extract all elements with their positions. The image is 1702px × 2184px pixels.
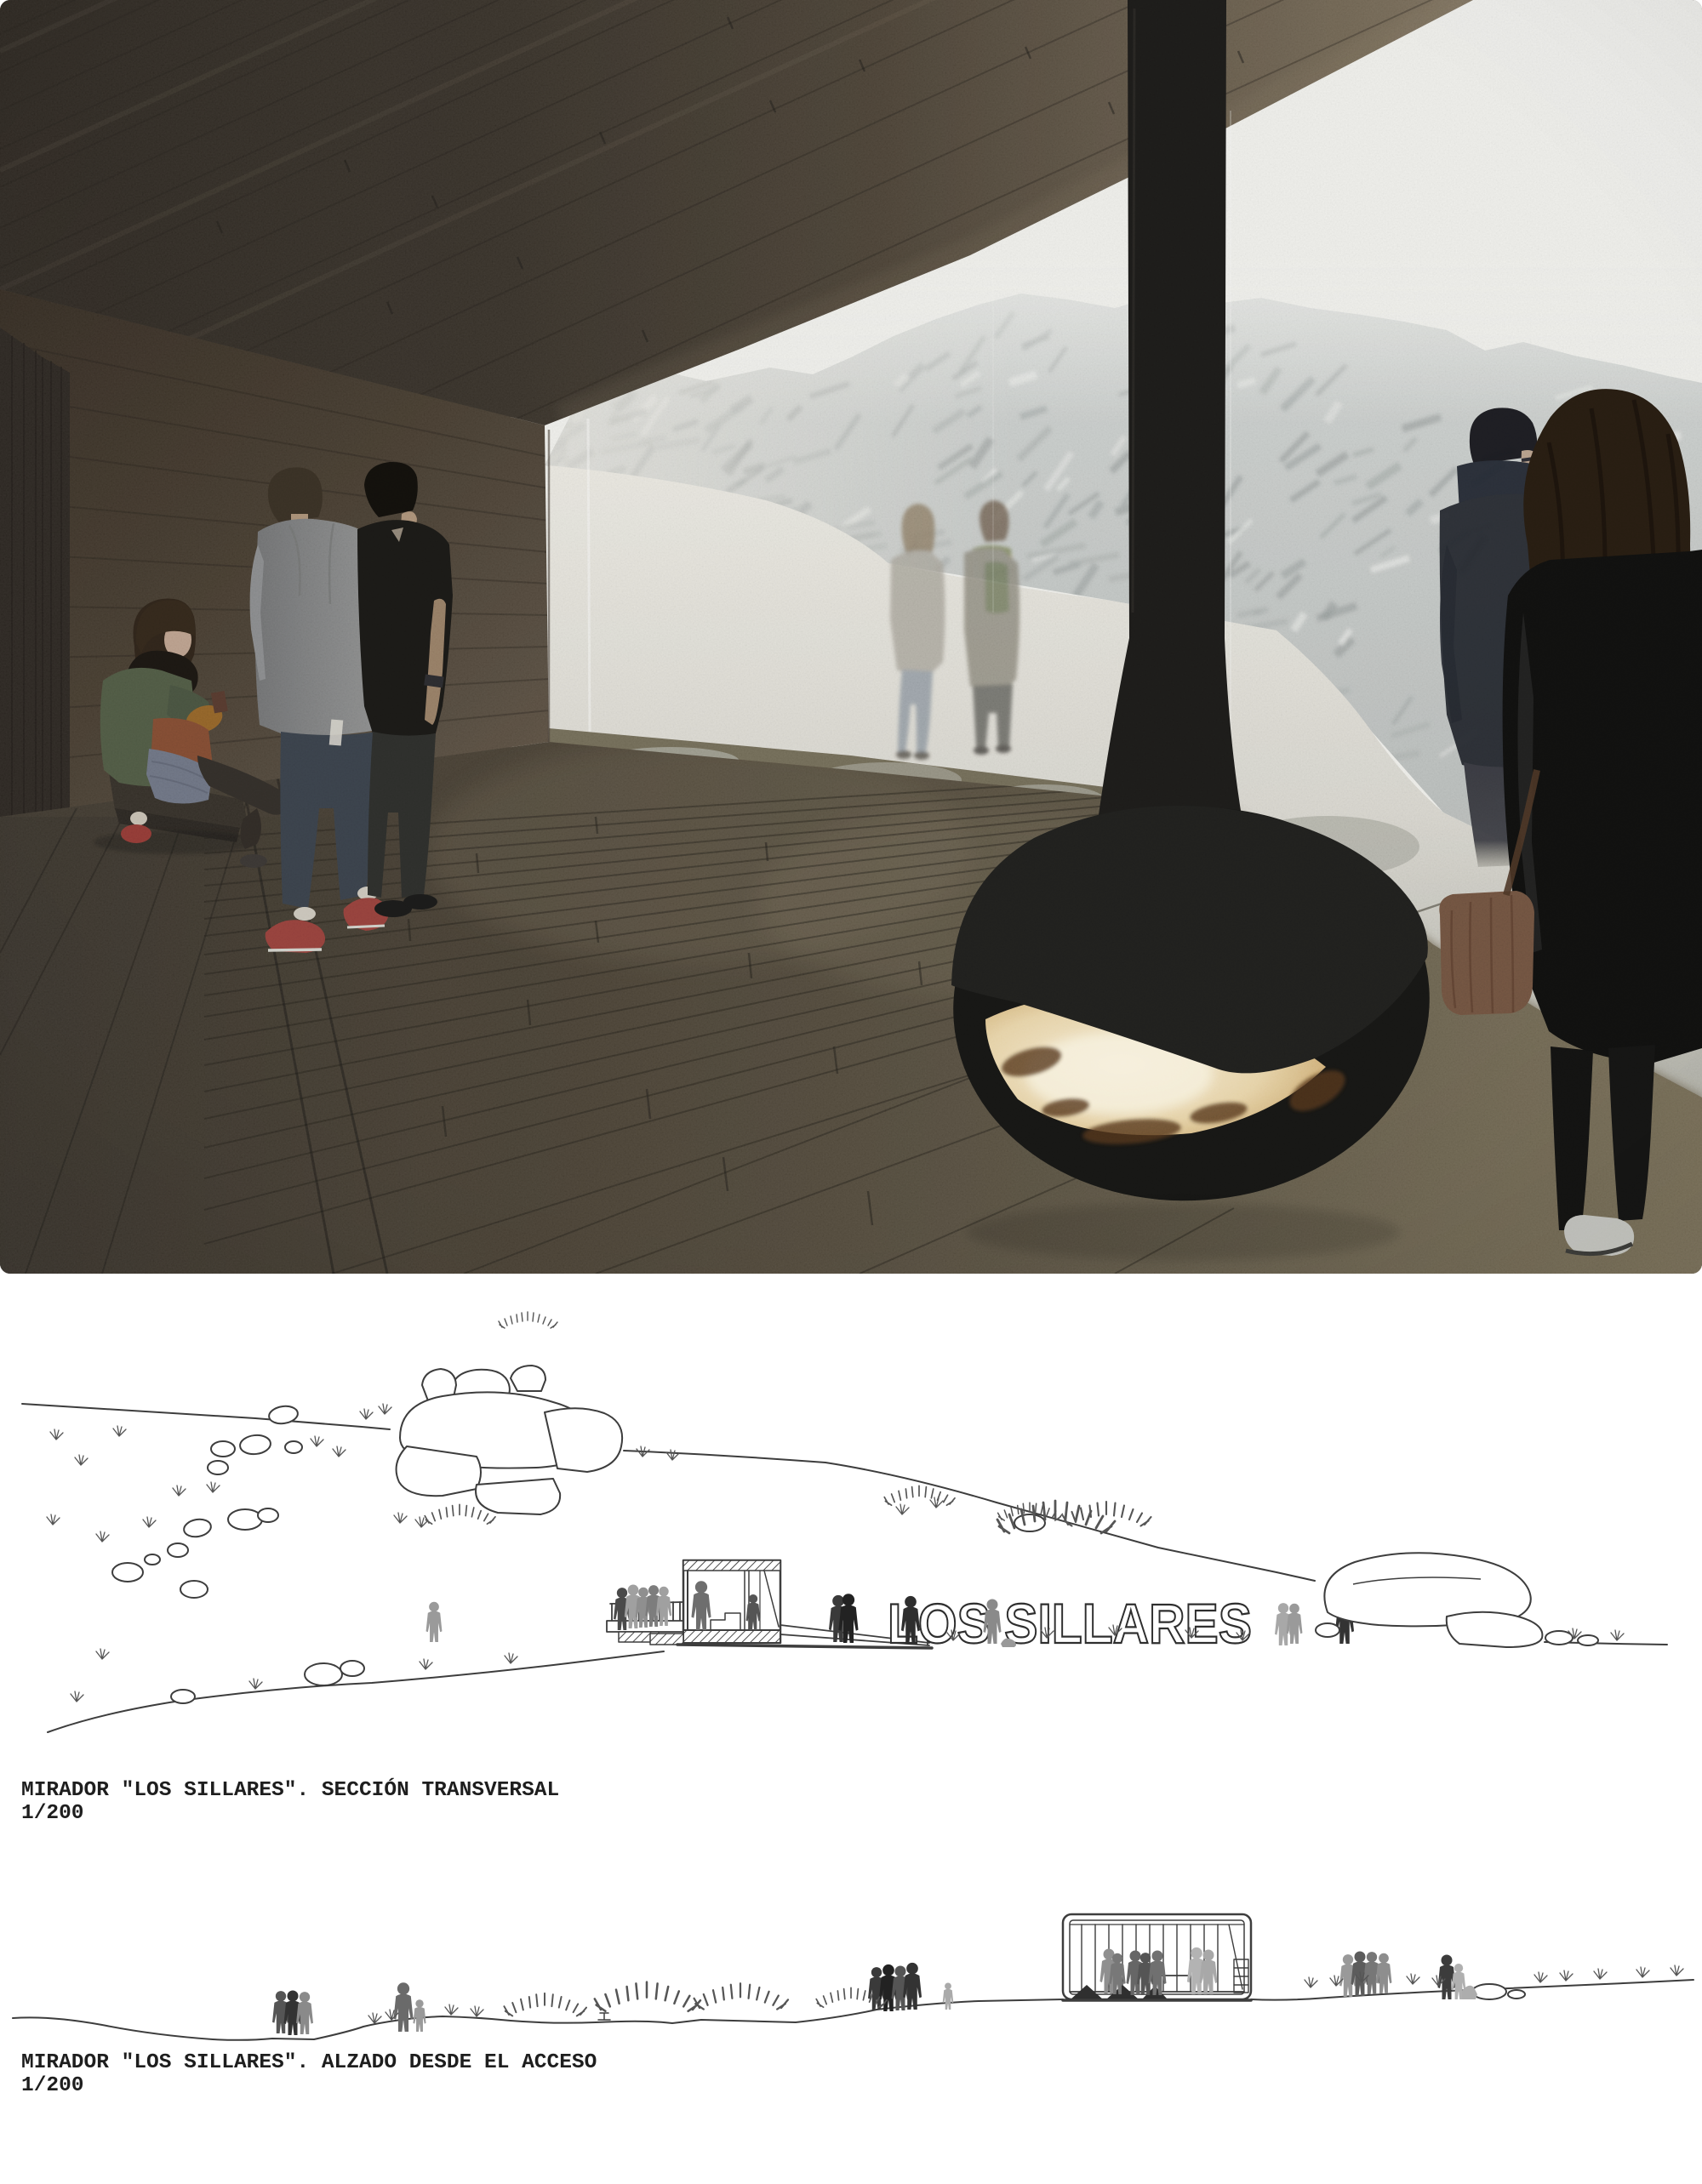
svg-text:LOS SILLARES: LOS SILLARES <box>888 1592 1252 1655</box>
svg-text:1/200: 1/200 <box>21 2074 84 2097</box>
svg-text:1/200: 1/200 <box>21 1802 84 1825</box>
svg-text:MIRADOR "LOS SILLARES". SECCIÓ: MIRADOR "LOS SILLARES". SECCIÓN TRANSVER… <box>21 1777 559 1802</box>
svg-text:MIRADOR "LOS SILLARES". ALZADO: MIRADOR "LOS SILLARES". ALZADO DESDE EL … <box>21 2051 597 2074</box>
